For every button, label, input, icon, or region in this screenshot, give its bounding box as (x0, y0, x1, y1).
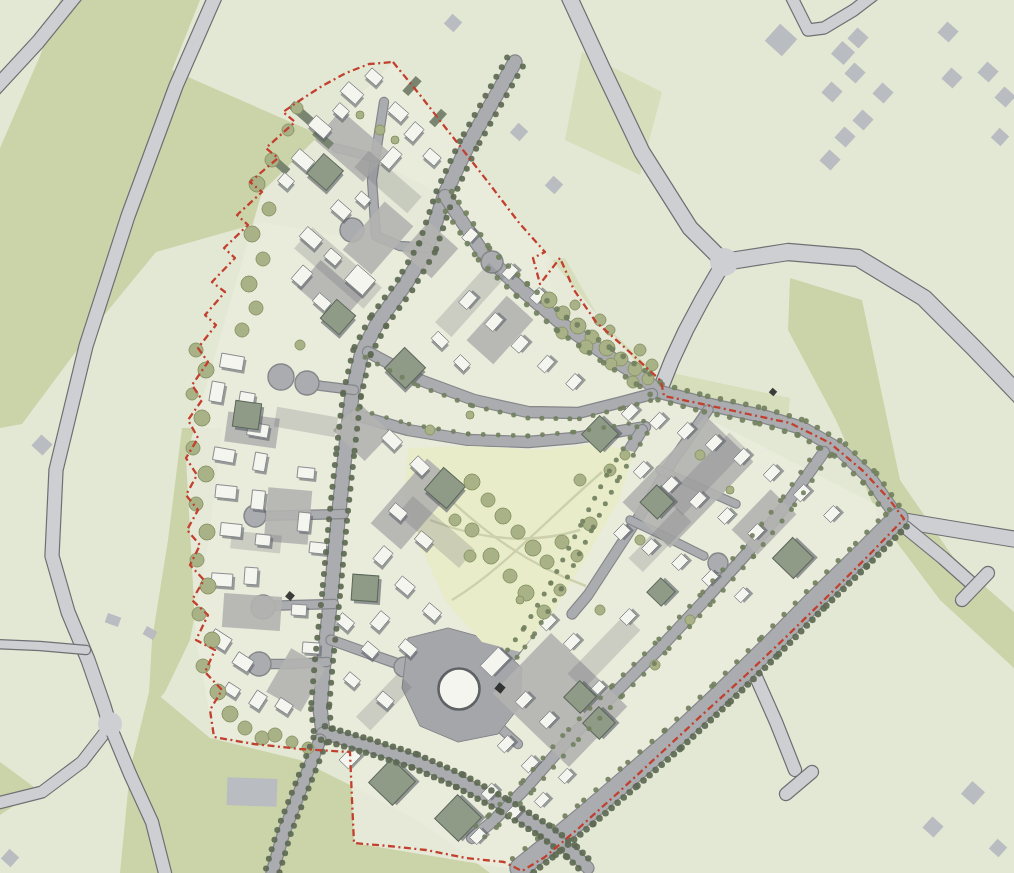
street-tree (814, 425, 820, 431)
tree (196, 659, 210, 673)
street-tree (416, 240, 422, 246)
street-tree (350, 347, 356, 353)
street-tree (327, 506, 333, 512)
tree (249, 301, 263, 315)
street-tree (612, 424, 617, 429)
street-tree (401, 762, 407, 768)
street-tree (598, 695, 603, 700)
street-tree (662, 728, 667, 733)
street-tree (384, 415, 389, 420)
street-tree (571, 836, 578, 843)
tree (262, 202, 276, 216)
street-tree (631, 361, 637, 367)
street-tree (621, 446, 626, 451)
street-tree (288, 831, 294, 837)
street-tree (488, 803, 494, 809)
street-tree (363, 372, 369, 378)
house-building (255, 534, 271, 547)
street-tree (596, 815, 603, 822)
street-tree (452, 148, 458, 154)
street-tree (426, 259, 432, 265)
tree (540, 555, 554, 569)
street-tree (739, 687, 746, 694)
street-tree (511, 433, 516, 438)
street-tree (608, 705, 613, 710)
street-tree (886, 540, 893, 547)
street-tree (795, 432, 801, 438)
tree (466, 411, 474, 419)
street-tree (697, 593, 702, 598)
street-tree (451, 194, 457, 200)
street-tree (318, 602, 324, 608)
street-tree (852, 574, 859, 581)
street-tree (560, 557, 565, 562)
street-tree (786, 413, 792, 419)
street-tree (750, 676, 757, 683)
street-tree (350, 464, 356, 470)
street-tree (537, 864, 544, 871)
street-tree (482, 834, 487, 839)
street-tree (846, 580, 853, 587)
tree (235, 323, 249, 337)
street-tree (513, 637, 518, 642)
street-tree (843, 441, 849, 447)
existing-building (227, 777, 278, 807)
street-tree (282, 850, 288, 856)
street-tree (725, 700, 732, 707)
street-tree (798, 470, 803, 475)
street-tree (274, 827, 280, 833)
street-tree (521, 627, 526, 632)
street-tree (511, 412, 516, 417)
street-tree (327, 715, 333, 721)
street-tree (460, 788, 466, 794)
street-tree (792, 502, 797, 507)
street-tree (598, 484, 603, 489)
street-tree (790, 482, 795, 487)
tree (255, 731, 269, 745)
street-tree (863, 563, 870, 570)
street-tree (847, 547, 852, 552)
street-tree (370, 411, 375, 416)
street-tree (311, 667, 317, 673)
street-tree (339, 573, 345, 579)
street-tree (572, 534, 577, 539)
street-tree (482, 93, 488, 99)
street-tree (285, 799, 291, 805)
street-tree (852, 450, 858, 456)
street-tree (399, 269, 405, 275)
street-tree (631, 453, 636, 458)
street-tree (279, 860, 285, 866)
street-tree (363, 749, 369, 755)
street-tree (449, 189, 455, 195)
tree (574, 474, 586, 486)
street-tree (824, 569, 829, 574)
street-tree (827, 454, 832, 459)
street-tree (603, 501, 608, 506)
street-tree (328, 680, 334, 686)
street-tree (477, 102, 483, 108)
cul-de-sac (295, 371, 319, 395)
street-tree (664, 756, 671, 763)
street-tree (429, 388, 434, 393)
street-tree (455, 398, 460, 403)
street-tree (836, 558, 841, 563)
street-tree (809, 617, 816, 624)
street-tree (731, 577, 736, 582)
street-tree (554, 569, 559, 574)
street-tree (405, 259, 411, 265)
street-tree (509, 83, 515, 89)
street-tree (903, 523, 910, 530)
street-tree (498, 409, 503, 414)
street-tree (538, 833, 544, 839)
street-tree (504, 55, 510, 61)
street-tree (443, 208, 449, 214)
street-tree (375, 303, 381, 309)
tree (481, 493, 495, 507)
street-tree (543, 859, 550, 866)
street-tree (341, 743, 347, 749)
road-junction (98, 712, 122, 736)
street-tree (719, 706, 726, 713)
street-tree (522, 846, 527, 851)
street-tree (807, 458, 812, 463)
tree (204, 632, 220, 648)
street-tree (841, 462, 847, 468)
street-tree (601, 425, 606, 430)
street-tree (407, 422, 412, 427)
street-tree (889, 492, 895, 498)
street-tree (857, 569, 864, 576)
street-tree (655, 397, 661, 403)
tree (200, 578, 216, 594)
street-tree (534, 310, 540, 316)
street-tree (861, 480, 867, 486)
street-tree (505, 648, 510, 653)
street-tree (474, 779, 480, 785)
street-tree (484, 406, 489, 411)
street-tree (495, 791, 501, 797)
street-tree (352, 448, 358, 454)
tree (194, 410, 210, 426)
street-tree (607, 468, 612, 473)
tree (465, 523, 479, 537)
street-tree (539, 620, 544, 625)
street-tree (662, 650, 667, 655)
street-tree (342, 540, 348, 546)
street-tree (570, 859, 576, 865)
tree (483, 548, 499, 564)
street-tree (687, 604, 692, 609)
street-tree (720, 567, 725, 572)
street-tree (896, 503, 902, 509)
street-tree (416, 767, 422, 773)
street-tree (561, 753, 566, 758)
street-tree (690, 733, 697, 740)
street-tree (793, 600, 798, 605)
street-tree (723, 670, 728, 675)
street-tree (334, 446, 340, 452)
street-tree (820, 605, 827, 612)
street-tree (422, 755, 428, 761)
street-tree (506, 797, 512, 803)
street-tree (624, 464, 629, 469)
street-tree (708, 602, 713, 607)
street-tree (544, 298, 550, 304)
street-tree (587, 726, 592, 731)
street-tree (533, 814, 539, 820)
street-tree (608, 805, 615, 812)
street-tree (601, 360, 607, 366)
street-tree (420, 230, 426, 236)
street-tree (577, 551, 582, 556)
street-tree (552, 827, 558, 833)
street-tree (851, 471, 857, 477)
street-tree (881, 481, 887, 487)
street-tree (322, 723, 328, 729)
street-tree (343, 529, 349, 535)
street-tree (473, 146, 479, 152)
street-tree (415, 278, 421, 284)
street-tree (340, 562, 346, 568)
street-tree (403, 296, 409, 302)
tree (295, 340, 305, 350)
street-tree (367, 736, 373, 742)
street-tree (515, 272, 521, 278)
street-tree (518, 821, 524, 827)
street-tree (508, 791, 513, 796)
street-tree (358, 393, 364, 399)
street-tree (319, 591, 325, 597)
street-tree (525, 434, 530, 439)
street-tree (579, 850, 585, 856)
street-tree (798, 628, 805, 635)
street-tree (387, 368, 392, 373)
street-tree (837, 438, 843, 444)
street-tree (583, 540, 588, 545)
street-tree (271, 837, 277, 843)
street-tree (677, 746, 684, 753)
street-tree (549, 854, 556, 861)
street-tree (515, 655, 520, 660)
street-tree (541, 776, 546, 781)
street-tree (757, 637, 762, 642)
street-tree (464, 166, 470, 172)
street-tree (534, 290, 540, 296)
street-tree (466, 432, 471, 437)
street-tree (460, 772, 466, 778)
street-tree (597, 716, 602, 721)
street-tree (330, 484, 336, 490)
street-tree (295, 813, 301, 819)
tree (464, 550, 476, 562)
street-tree (317, 613, 323, 619)
street-tree (461, 131, 467, 137)
tree (286, 736, 298, 748)
street-tree (575, 865, 581, 871)
street-tree (333, 741, 339, 747)
street-tree (442, 393, 447, 398)
street-tree (514, 73, 520, 79)
street-tree (730, 399, 736, 405)
street-tree (498, 809, 504, 815)
street-tree (466, 122, 472, 128)
tree (726, 486, 734, 494)
street-tree (834, 591, 841, 598)
parking-court (222, 593, 282, 631)
street-tree (303, 753, 309, 759)
street-tree (336, 604, 342, 610)
street-tree (804, 589, 809, 594)
street-tree (285, 841, 291, 847)
street-tree (309, 777, 315, 783)
street-tree (713, 711, 720, 718)
street-tree (883, 512, 889, 518)
street-tree (733, 692, 740, 699)
street-tree (438, 178, 444, 184)
street-tree (587, 427, 592, 432)
street-tree (869, 557, 876, 564)
street-tree (540, 755, 545, 760)
house-building (244, 567, 258, 585)
street-tree (519, 805, 525, 811)
street-tree (382, 741, 388, 747)
street-tree (266, 856, 272, 862)
street-tree (782, 428, 788, 434)
tree (516, 596, 524, 604)
street-tree (539, 416, 544, 421)
street-tree (677, 615, 682, 620)
street-tree (564, 315, 570, 321)
street-tree (345, 730, 351, 736)
street-tree (397, 746, 403, 752)
street-tree (667, 646, 672, 651)
street-tree (826, 431, 832, 437)
street-tree (612, 367, 618, 373)
street-tree (803, 418, 809, 424)
street-tree (496, 254, 502, 260)
street-tree (698, 695, 703, 700)
street-tree (365, 362, 371, 368)
tree (570, 300, 580, 310)
street-tree (440, 225, 446, 231)
street-tree (360, 734, 366, 740)
street-tree (697, 391, 703, 397)
street-tree (773, 653, 780, 660)
street-tree (388, 286, 394, 292)
street-tree (363, 355, 368, 360)
street-tree (356, 748, 362, 754)
house-building (297, 512, 311, 532)
street-tree (368, 351, 374, 357)
street-tree (623, 374, 629, 380)
tree (464, 474, 480, 490)
street-tree (567, 416, 572, 421)
street-tree (437, 761, 443, 767)
street-tree (423, 219, 429, 225)
street-tree (465, 241, 471, 247)
house-building (291, 604, 307, 616)
street-tree (278, 818, 284, 824)
street-tree (862, 459, 868, 465)
street-tree (614, 457, 619, 462)
street-tree (506, 263, 512, 269)
street-tree (620, 794, 627, 801)
street-tree (585, 855, 591, 861)
street-tree (761, 406, 767, 412)
street-tree (539, 818, 545, 824)
street-tree (756, 670, 763, 677)
street-tree (576, 343, 582, 349)
street-tree (433, 188, 439, 194)
street-tree (730, 556, 735, 561)
street-tree (499, 64, 505, 70)
street-tree (314, 635, 320, 641)
street-tree (789, 507, 794, 512)
street-tree (587, 350, 593, 356)
street-tree (589, 821, 596, 828)
street-tree (618, 766, 623, 771)
street-tree (574, 322, 580, 328)
street-tree (512, 801, 518, 807)
street-tree (487, 245, 493, 251)
house-building (220, 522, 242, 537)
street-tree (504, 284, 510, 290)
house-building (215, 484, 237, 499)
street-tree (354, 426, 360, 432)
street-tree (770, 530, 775, 535)
street-tree (555, 328, 561, 334)
street-tree (597, 513, 602, 518)
street-tree (564, 854, 570, 860)
street-tree (498, 102, 504, 108)
street-tree (355, 415, 361, 421)
street-tree (829, 597, 836, 604)
street-tree (411, 250, 417, 256)
street-tree (577, 716, 582, 721)
street-tree (378, 754, 384, 760)
street-tree (641, 419, 646, 424)
street-tree (335, 615, 341, 621)
street-tree (634, 424, 639, 429)
street-tree (328, 495, 334, 501)
street-tree (336, 424, 342, 430)
street-tree (481, 432, 486, 437)
street-tree (427, 209, 433, 215)
street-tree (467, 792, 473, 798)
street-tree (762, 664, 769, 671)
tree (449, 514, 461, 526)
street-tree (333, 626, 339, 632)
street-tree (674, 716, 679, 721)
tree (198, 466, 214, 482)
street-tree (360, 383, 366, 389)
tree (495, 508, 511, 524)
tree (238, 721, 252, 735)
street-tree (593, 787, 598, 792)
key-building (232, 400, 261, 429)
street-tree (451, 768, 457, 774)
street-tree (409, 287, 415, 293)
street-tree (339, 402, 345, 408)
street-tree (653, 641, 658, 646)
street-tree (324, 740, 330, 746)
street-tree (309, 689, 315, 695)
street-tree (637, 383, 643, 389)
street-tree (686, 706, 691, 711)
